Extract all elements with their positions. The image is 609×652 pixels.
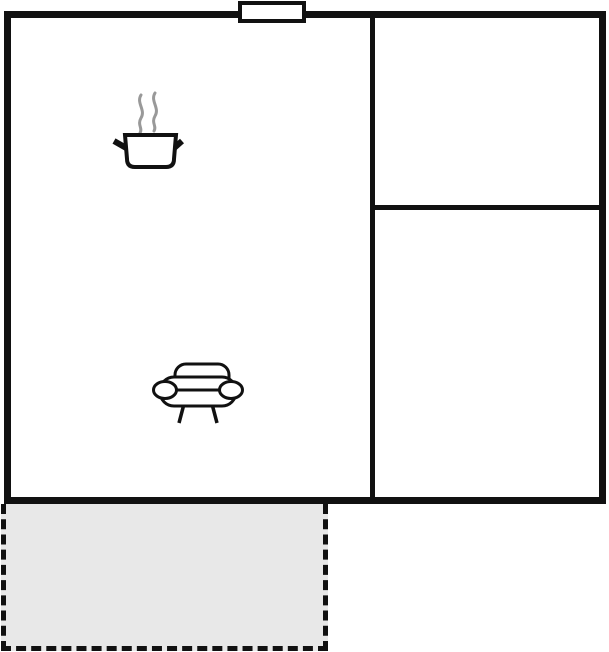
sofa-armrest-right: [220, 382, 243, 399]
cooking-pot-icon: [110, 89, 186, 171]
terrace-area: [1, 504, 328, 651]
window-icon: [238, 1, 306, 23]
steam-line: [140, 95, 143, 133]
pot-body: [125, 135, 176, 167]
floorplan-canvas: 1: [0, 0, 609, 652]
sofa-icon: [152, 362, 244, 426]
interior-wall-horizontal: [375, 205, 599, 210]
interior-wall-vertical: [370, 18, 375, 497]
steam-line: [154, 93, 157, 131]
room-bedroom-1: 1: [375, 210, 599, 497]
room-living-kitchen: [11, 18, 370, 497]
sofa-armrest-left: [154, 382, 177, 399]
room-bathroom: [375, 18, 599, 205]
